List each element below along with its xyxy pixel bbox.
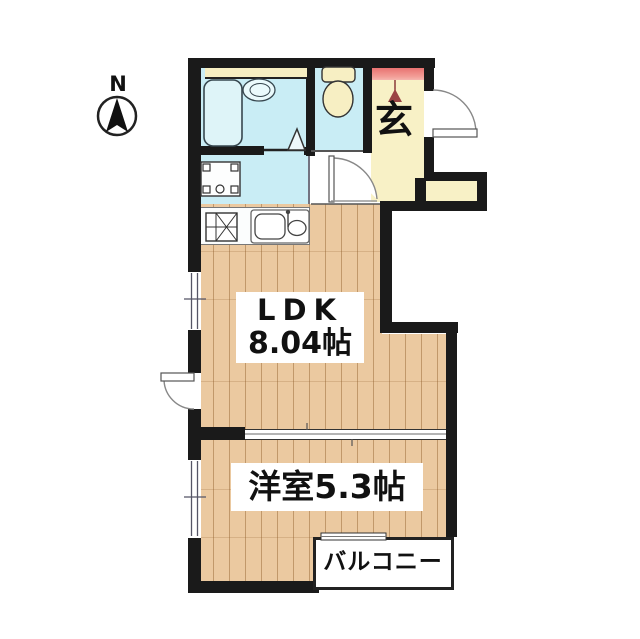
compass-north-label: N — [104, 72, 132, 96]
bathroom-top-window — [205, 68, 307, 79]
wall-bath-bottom — [188, 146, 264, 155]
wall-bath-toilet — [306, 60, 315, 156]
western-room-label: 洋室5.3帖 — [231, 463, 423, 511]
room-washroom — [198, 156, 308, 206]
entrance-label: 玄 — [370, 100, 418, 140]
compass-needle-icon — [106, 98, 128, 132]
room-toilet — [308, 64, 367, 152]
wall-partition-stub — [188, 427, 245, 440]
door-leaf-entrance — [433, 129, 477, 137]
balcony-label: バルコニー — [317, 548, 449, 576]
wall-ldk-right-upper — [380, 201, 392, 333]
room-western-ext — [198, 541, 314, 583]
sliding-door-partition — [245, 429, 446, 440]
wall-washroom-stub — [304, 147, 314, 155]
kitchen-counter — [198, 207, 310, 245]
window-ldk-left — [188, 272, 201, 330]
room-corridor — [311, 150, 371, 205]
ldk-label: LDK 8.04帖 — [236, 292, 364, 363]
wall-bottom — [188, 581, 319, 593]
compass-circle — [98, 97, 136, 135]
wall-hall-bottom — [380, 201, 487, 211]
entrance-porch — [426, 178, 479, 203]
door-arc-entrance — [433, 90, 476, 133]
door-opening-entrance — [424, 91, 434, 137]
ldk-name: LDK — [236, 294, 364, 327]
floor-plan: N — [0, 0, 640, 639]
door-opening-ldk-left — [188, 373, 201, 409]
wall-entrance-right-upper — [424, 58, 434, 92]
wall-western-right — [446, 322, 457, 537]
window-western-left — [188, 460, 201, 538]
ldk-size: 8.04帖 — [236, 327, 364, 361]
